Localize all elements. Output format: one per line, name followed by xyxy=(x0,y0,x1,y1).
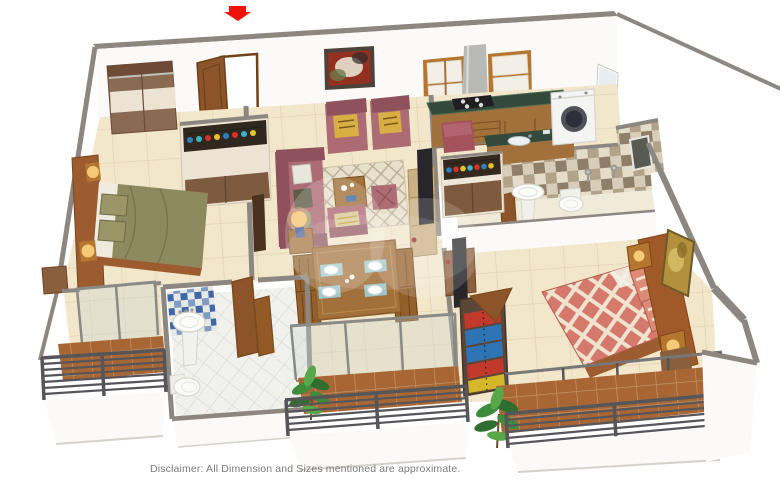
washing-machine xyxy=(551,89,596,145)
balcony-left xyxy=(41,282,168,444)
master-wall-art xyxy=(662,230,694,296)
balcony-center xyxy=(285,314,469,470)
entrance-arrow-icon xyxy=(224,6,251,21)
headboard-lamp xyxy=(627,242,652,271)
living-wall-art xyxy=(324,46,375,90)
headboard-lamp xyxy=(79,240,97,262)
red-pouf xyxy=(441,120,475,153)
accent-armchair xyxy=(370,95,411,150)
sliding-door xyxy=(76,282,159,344)
disclaimer-text: Disclaimer: All Dimension and Sizes ment… xyxy=(150,463,460,475)
sink-basin xyxy=(508,137,530,146)
headboard-lamp xyxy=(85,162,101,182)
open-wardrobe-clothes xyxy=(460,288,512,396)
right-parapet xyxy=(702,352,757,462)
floor-plan-render xyxy=(0,0,780,490)
bathroom-window xyxy=(630,136,652,170)
bedroom1-door-panel xyxy=(252,194,266,252)
wardrobe xyxy=(107,61,177,134)
accent-armchair xyxy=(325,98,368,154)
wall-hung-toilet xyxy=(559,188,583,212)
floor-plan-canvas: Disclaimer: All Dimension and Sizes ment… xyxy=(0,0,780,490)
